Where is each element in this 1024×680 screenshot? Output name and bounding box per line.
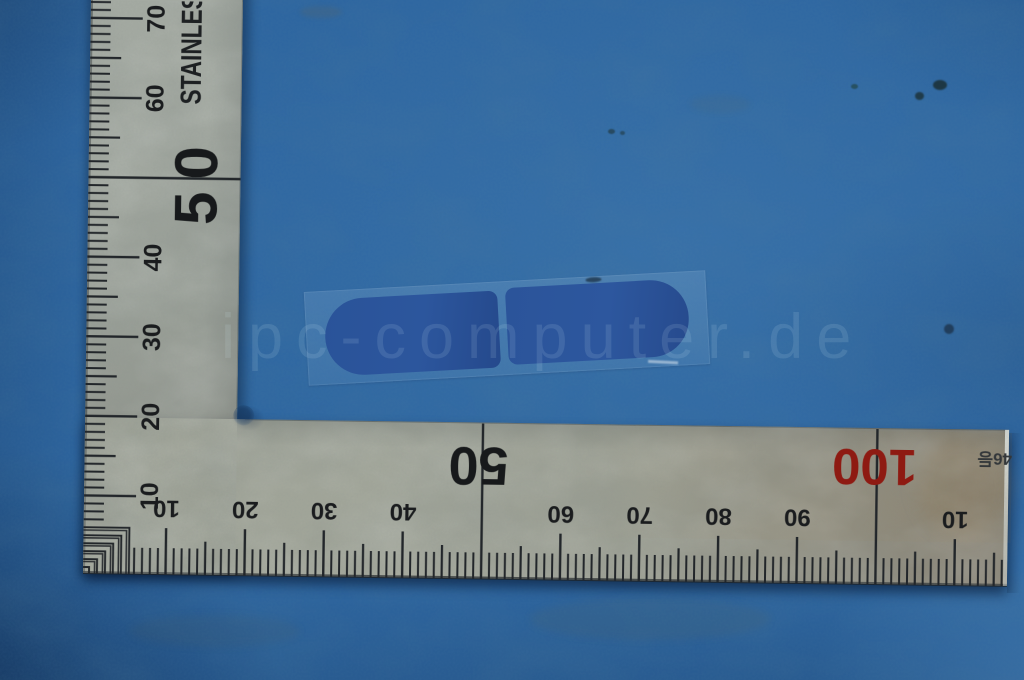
svg-text:90: 90 xyxy=(784,503,811,530)
svg-text:20: 20 xyxy=(137,403,165,431)
svg-text:10: 10 xyxy=(942,505,969,532)
svg-text:30: 30 xyxy=(311,497,338,524)
svg-text:46등: 46등 xyxy=(977,449,1012,468)
svg-text:50: 50 xyxy=(162,134,230,226)
svg-text:40: 40 xyxy=(389,498,416,525)
svg-text:10: 10 xyxy=(153,494,180,521)
svg-text:20: 20 xyxy=(232,496,259,523)
svg-text:60: 60 xyxy=(547,500,574,527)
svg-text:30: 30 xyxy=(138,323,166,351)
svg-text:70: 70 xyxy=(626,501,653,528)
svg-text:60: 60 xyxy=(141,84,169,112)
svg-text:100: 100 xyxy=(832,438,918,496)
svg-text:STAINLESS: STAINLESS xyxy=(174,0,209,105)
svg-text:80: 80 xyxy=(705,502,732,529)
svg-text:70: 70 xyxy=(143,5,171,33)
svg-text:40: 40 xyxy=(139,243,167,271)
svg-text:50: 50 xyxy=(448,435,509,496)
